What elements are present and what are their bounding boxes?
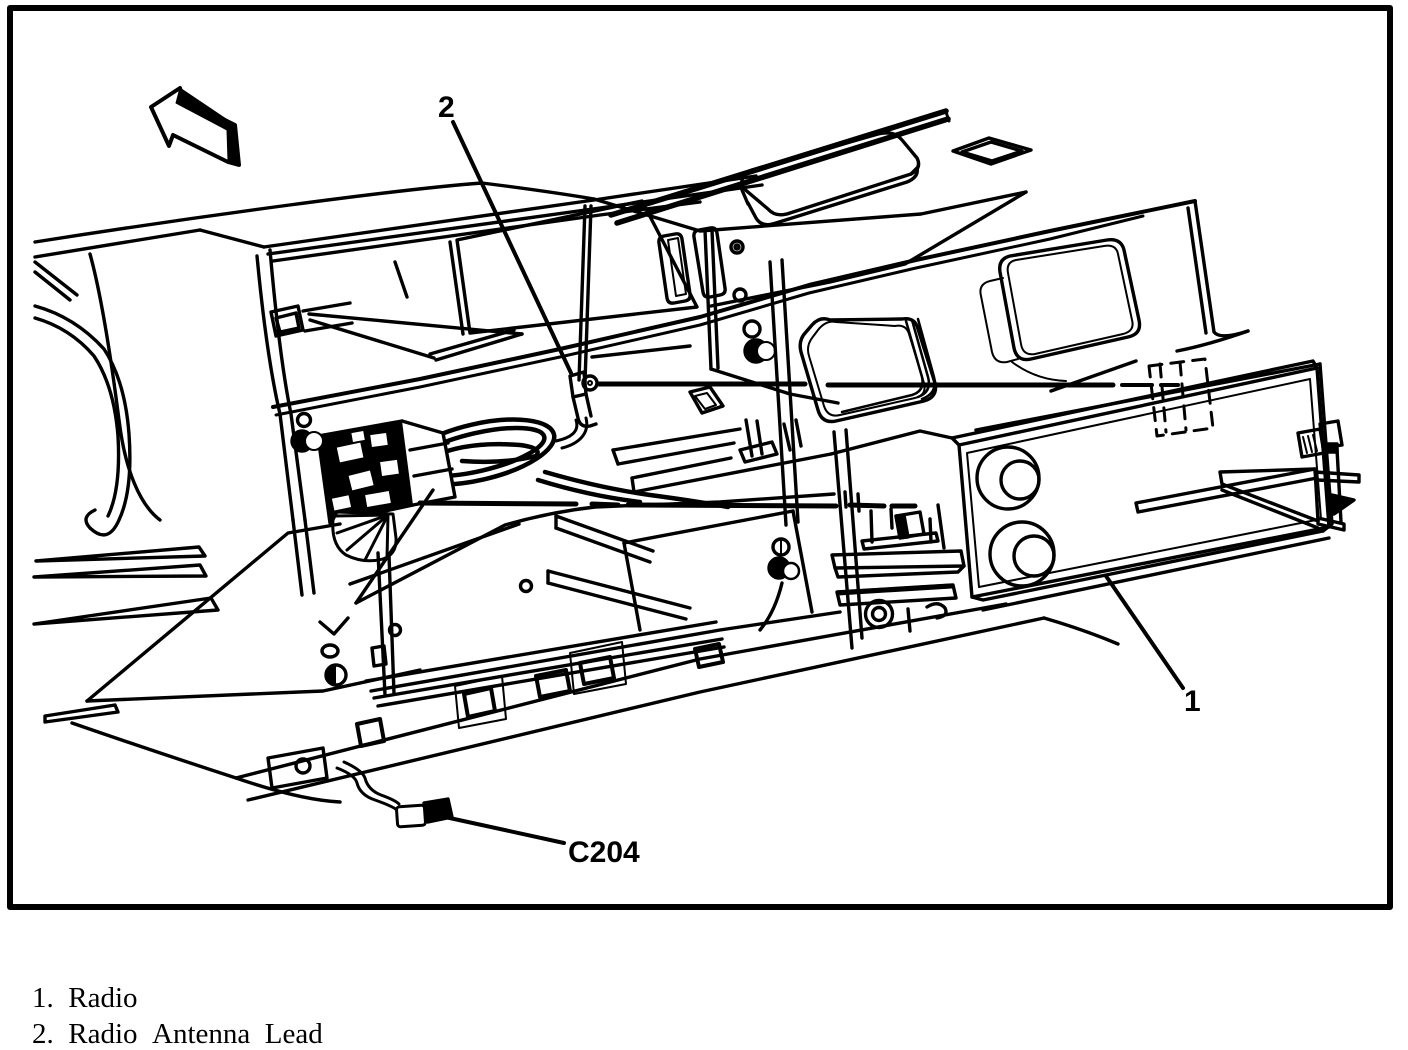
svg-text:1: 1	[1184, 685, 1201, 718]
svg-text:2. Radio Antenna Lead: 2. Radio Antenna Lead	[32, 1018, 323, 1050]
svg-text:2: 2	[438, 91, 455, 124]
svg-text:1. Radio: 1. Radio	[32, 982, 138, 1014]
svg-text:C204: C204	[568, 836, 640, 869]
